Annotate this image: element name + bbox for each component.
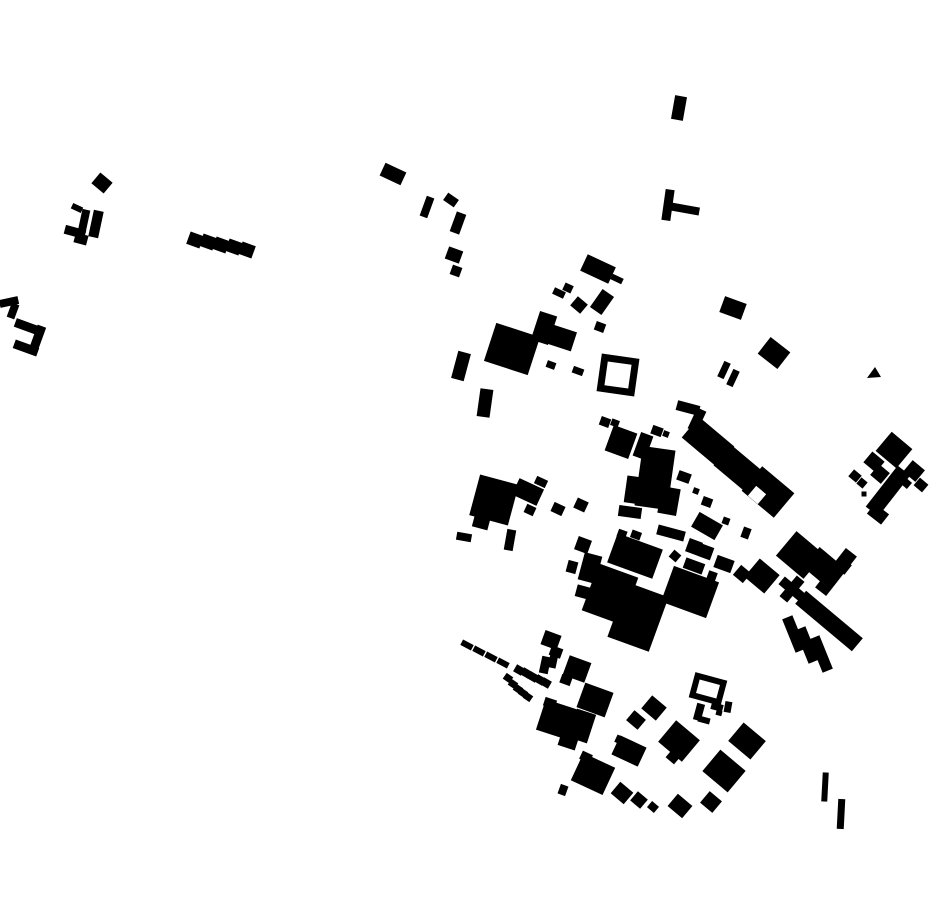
building-footprint bbox=[669, 550, 682, 563]
building-footprint bbox=[862, 492, 867, 497]
building-footprint bbox=[728, 722, 766, 759]
building-footprint bbox=[445, 246, 464, 263]
building-footprint bbox=[580, 254, 616, 283]
building-footprint bbox=[594, 321, 606, 333]
building-footprint bbox=[662, 430, 670, 438]
building-footprint bbox=[460, 640, 473, 651]
building-footprint bbox=[472, 646, 485, 657]
building-footprint bbox=[650, 425, 663, 437]
building-footprint bbox=[566, 560, 579, 574]
building-footprint bbox=[456, 532, 472, 542]
building-footprint bbox=[504, 529, 517, 551]
building-footprint bbox=[717, 361, 731, 379]
building-outline bbox=[692, 676, 723, 702]
building-footprint bbox=[590, 289, 614, 315]
building-footprint bbox=[697, 716, 710, 725]
building-footprint bbox=[630, 791, 648, 809]
building-footprint bbox=[758, 337, 791, 369]
building-footprint bbox=[618, 505, 642, 519]
building-footprint bbox=[450, 211, 467, 234]
building-footprint bbox=[420, 196, 435, 218]
building-footprint bbox=[477, 388, 494, 418]
building-footprint bbox=[867, 367, 881, 378]
building-footprint bbox=[610, 274, 623, 285]
building-footprint bbox=[611, 782, 634, 804]
building-footprint bbox=[692, 487, 700, 495]
building-footprint bbox=[451, 351, 471, 381]
building-footprint bbox=[641, 695, 666, 720]
building-footprint bbox=[740, 526, 751, 539]
building-footprint bbox=[484, 323, 540, 375]
building-footprint bbox=[700, 791, 722, 813]
building-footprint bbox=[558, 784, 569, 796]
building-footprint bbox=[548, 653, 559, 668]
building-footprint bbox=[668, 794, 693, 818]
building-footprint-map bbox=[0, 0, 930, 924]
building-footprint bbox=[719, 296, 746, 320]
building-footprint bbox=[656, 525, 686, 542]
building-footprint bbox=[744, 558, 779, 593]
building-footprint bbox=[658, 720, 700, 761]
building-footprint bbox=[670, 203, 700, 216]
building-footprint bbox=[676, 470, 692, 484]
building-footprint bbox=[546, 360, 557, 370]
map-canvas bbox=[0, 0, 930, 924]
building-footprint bbox=[73, 232, 88, 245]
building-footprint bbox=[484, 652, 497, 663]
building-footprint bbox=[91, 172, 112, 193]
building-footprint bbox=[671, 95, 687, 121]
building-footprint bbox=[573, 497, 589, 512]
building-outline bbox=[600, 357, 635, 392]
building-footprint bbox=[88, 210, 103, 238]
building-footprint bbox=[626, 710, 646, 730]
building-footprint bbox=[726, 369, 740, 387]
building-footprint bbox=[724, 701, 733, 713]
building-footprint bbox=[647, 801, 659, 813]
building-footprint bbox=[570, 296, 588, 314]
building-footprint bbox=[722, 517, 731, 526]
building-footprint bbox=[821, 772, 829, 801]
building-footprint bbox=[443, 193, 459, 208]
building-footprint bbox=[550, 502, 565, 516]
building-footprint bbox=[599, 416, 611, 428]
building-footprint bbox=[540, 630, 561, 650]
building-footprint bbox=[713, 555, 734, 573]
building-footprint bbox=[702, 750, 745, 793]
building-footprint bbox=[496, 658, 509, 669]
building-footprint bbox=[572, 366, 585, 376]
building-footprint bbox=[571, 753, 615, 795]
building-footprint bbox=[380, 163, 407, 185]
building-footprint bbox=[450, 265, 463, 278]
building-footprint bbox=[574, 536, 592, 554]
building-footprint bbox=[605, 425, 638, 459]
building-footprint bbox=[837, 799, 846, 829]
building-footprint bbox=[71, 203, 84, 213]
building-footprint bbox=[691, 512, 723, 540]
building-footprint bbox=[701, 496, 713, 508]
building-footprint bbox=[524, 504, 537, 516]
